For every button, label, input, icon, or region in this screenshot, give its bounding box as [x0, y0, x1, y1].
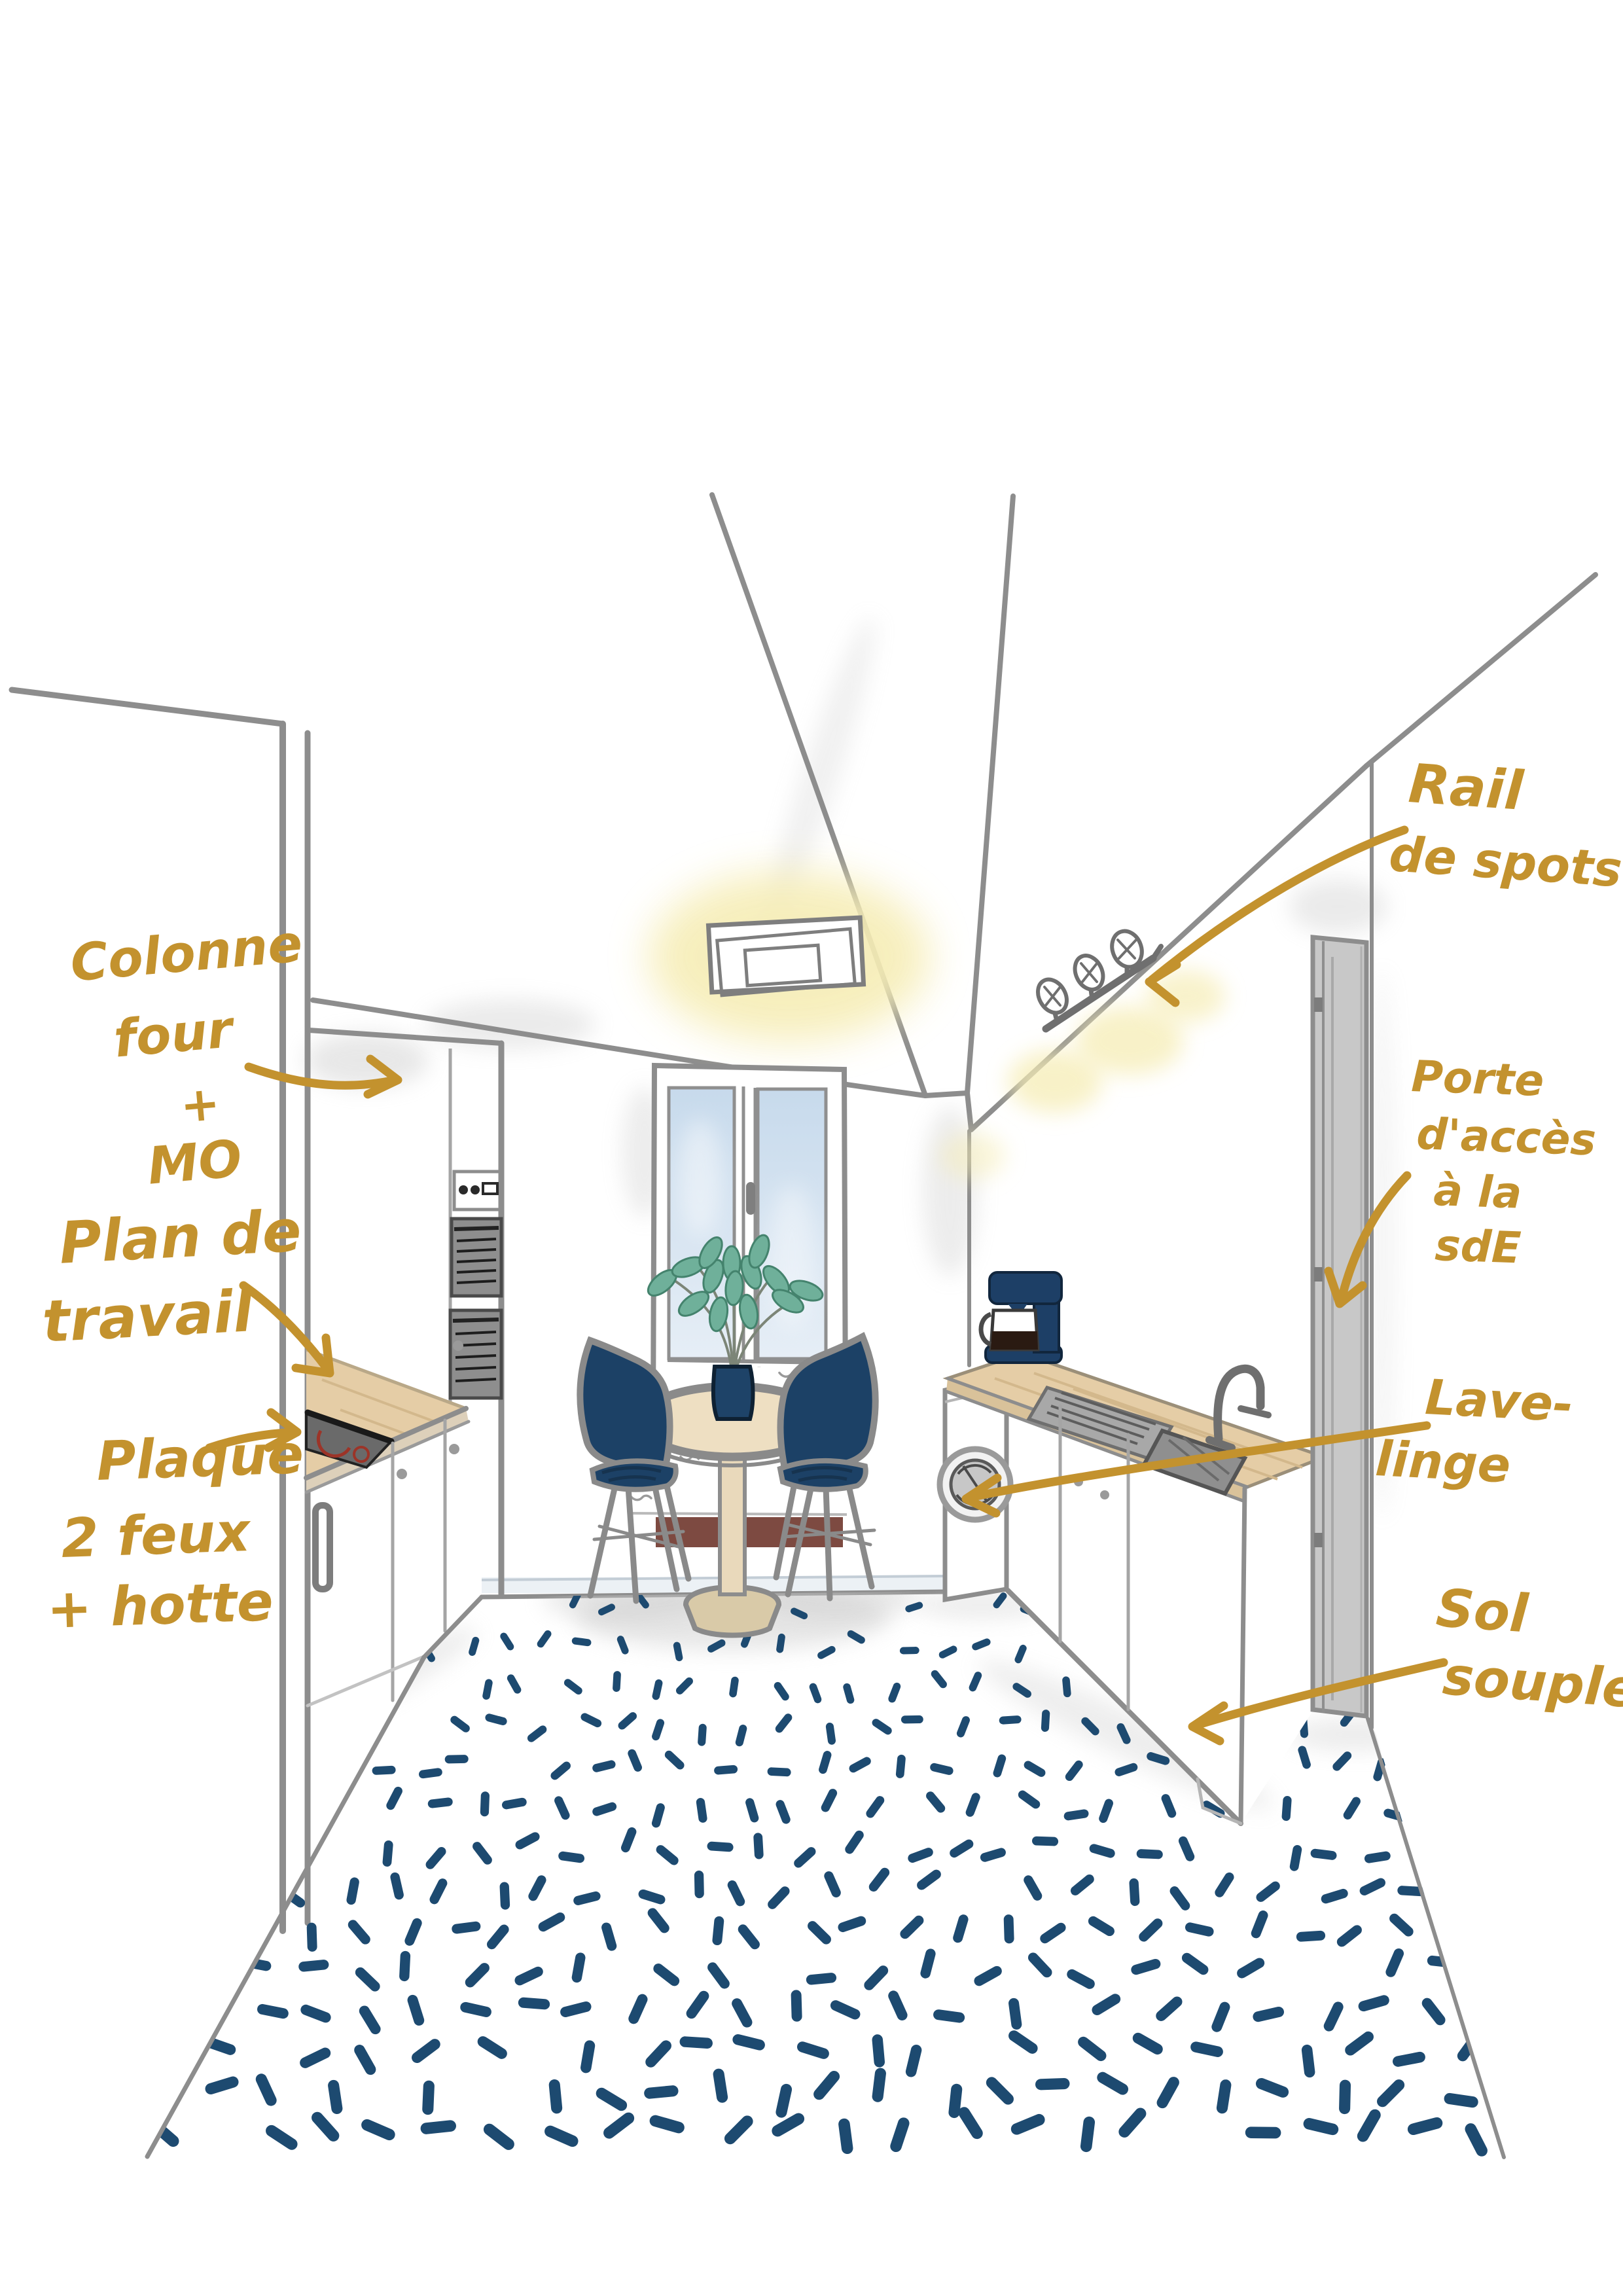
coffee-carafe — [981, 1310, 1038, 1350]
chair-right — [776, 1336, 876, 1598]
arrow-plan-de-travail — [243, 1285, 330, 1373]
door-hinge — [1314, 1533, 1323, 1547]
bathroom-door — [1313, 937, 1366, 1716]
annotation-text: MO — [145, 1129, 244, 1196]
ceiling-light — [708, 918, 863, 996]
annotation-text: à la — [1433, 1165, 1522, 1219]
annotation-text: Porte — [1410, 1051, 1544, 1106]
oven-lower — [450, 1310, 501, 1398]
floor — [131, 1575, 1511, 2159]
sketch-page: Colonne four + MO Plan de travail Plaque… — [0, 0, 1623, 2296]
annotation-text: four — [111, 1000, 235, 1069]
door-hinge — [1314, 997, 1323, 1012]
annotation-text: Rail — [1406, 753, 1525, 823]
oven-control-panel — [454, 1172, 500, 1210]
annotation-text: 2 feux — [60, 1501, 251, 1570]
annotation-text: Sol — [1435, 1577, 1530, 1645]
annotation-text: sdE — [1434, 1220, 1522, 1274]
annotation-text: linge — [1374, 1431, 1512, 1494]
plant-pot — [713, 1367, 753, 1419]
window-handle — [746, 1182, 755, 1215]
annotation-text: + — [178, 1075, 222, 1134]
kitchen-sketch-drawing — [0, 0, 1623, 2296]
oven-upper — [452, 1219, 501, 1296]
floor-speckle-pattern — [131, 1586, 1511, 2159]
cabinet-handle — [315, 1505, 330, 1589]
annotation-text: Plaque — [96, 1424, 304, 1493]
table-pedestal — [720, 1448, 745, 1594]
annotation-text: d'accès — [1416, 1109, 1597, 1166]
door-hinge — [1314, 1267, 1323, 1282]
oven-column — [309, 1030, 501, 1594]
coffee-maker — [981, 1272, 1061, 1363]
annotation-text: Lave- — [1423, 1369, 1574, 1433]
annotation-text: travail — [41, 1277, 255, 1355]
annotation-text: + hotte — [46, 1571, 274, 1641]
annotation-text: Plan de — [58, 1197, 303, 1277]
